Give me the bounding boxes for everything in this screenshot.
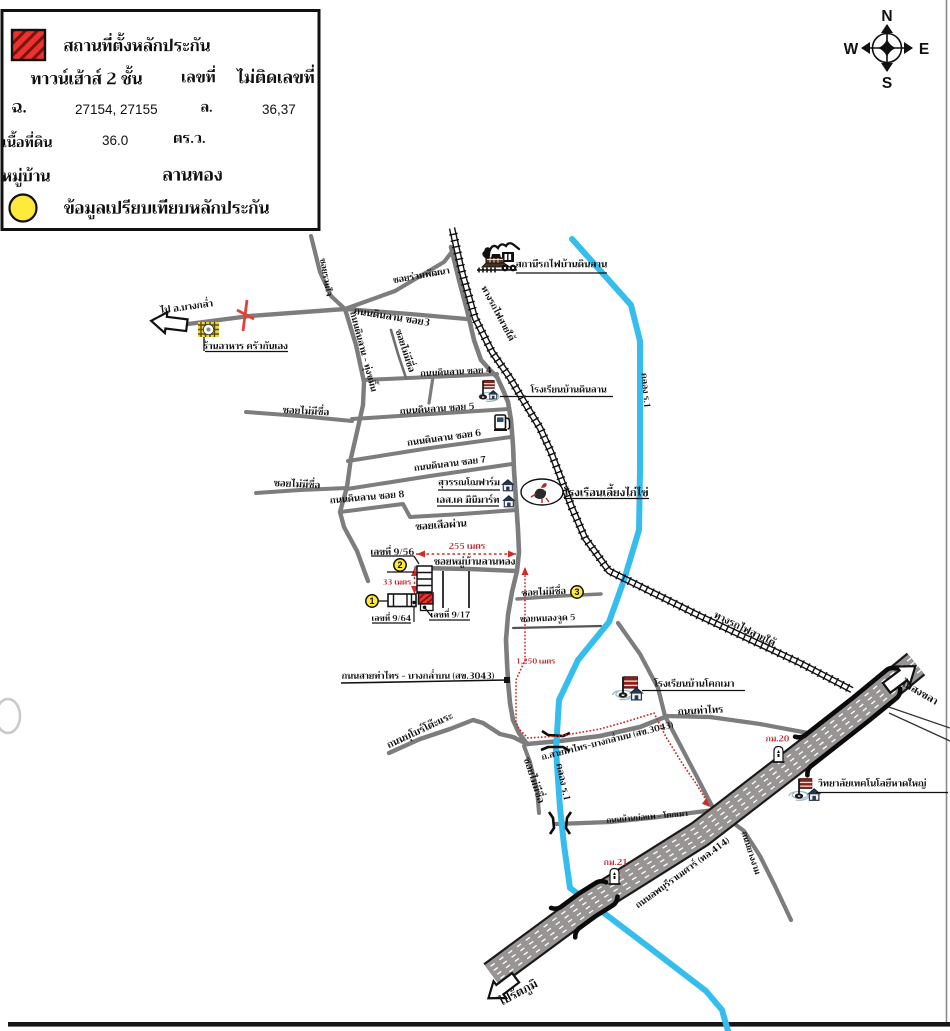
svg-text:36.0: 36.0 xyxy=(102,133,128,148)
svg-text:E: E xyxy=(919,41,929,58)
svg-text:2: 2 xyxy=(397,560,402,570)
svg-text:3: 3 xyxy=(574,587,579,597)
svg-text:N: N xyxy=(881,8,892,25)
svg-text:W: W xyxy=(844,41,859,58)
svg-text:27154, 27155: 27154, 27155 xyxy=(75,102,158,117)
svg-text:S: S xyxy=(882,75,892,92)
svg-text:1: 1 xyxy=(369,596,374,606)
svg-text:36,37: 36,37 xyxy=(262,102,296,117)
